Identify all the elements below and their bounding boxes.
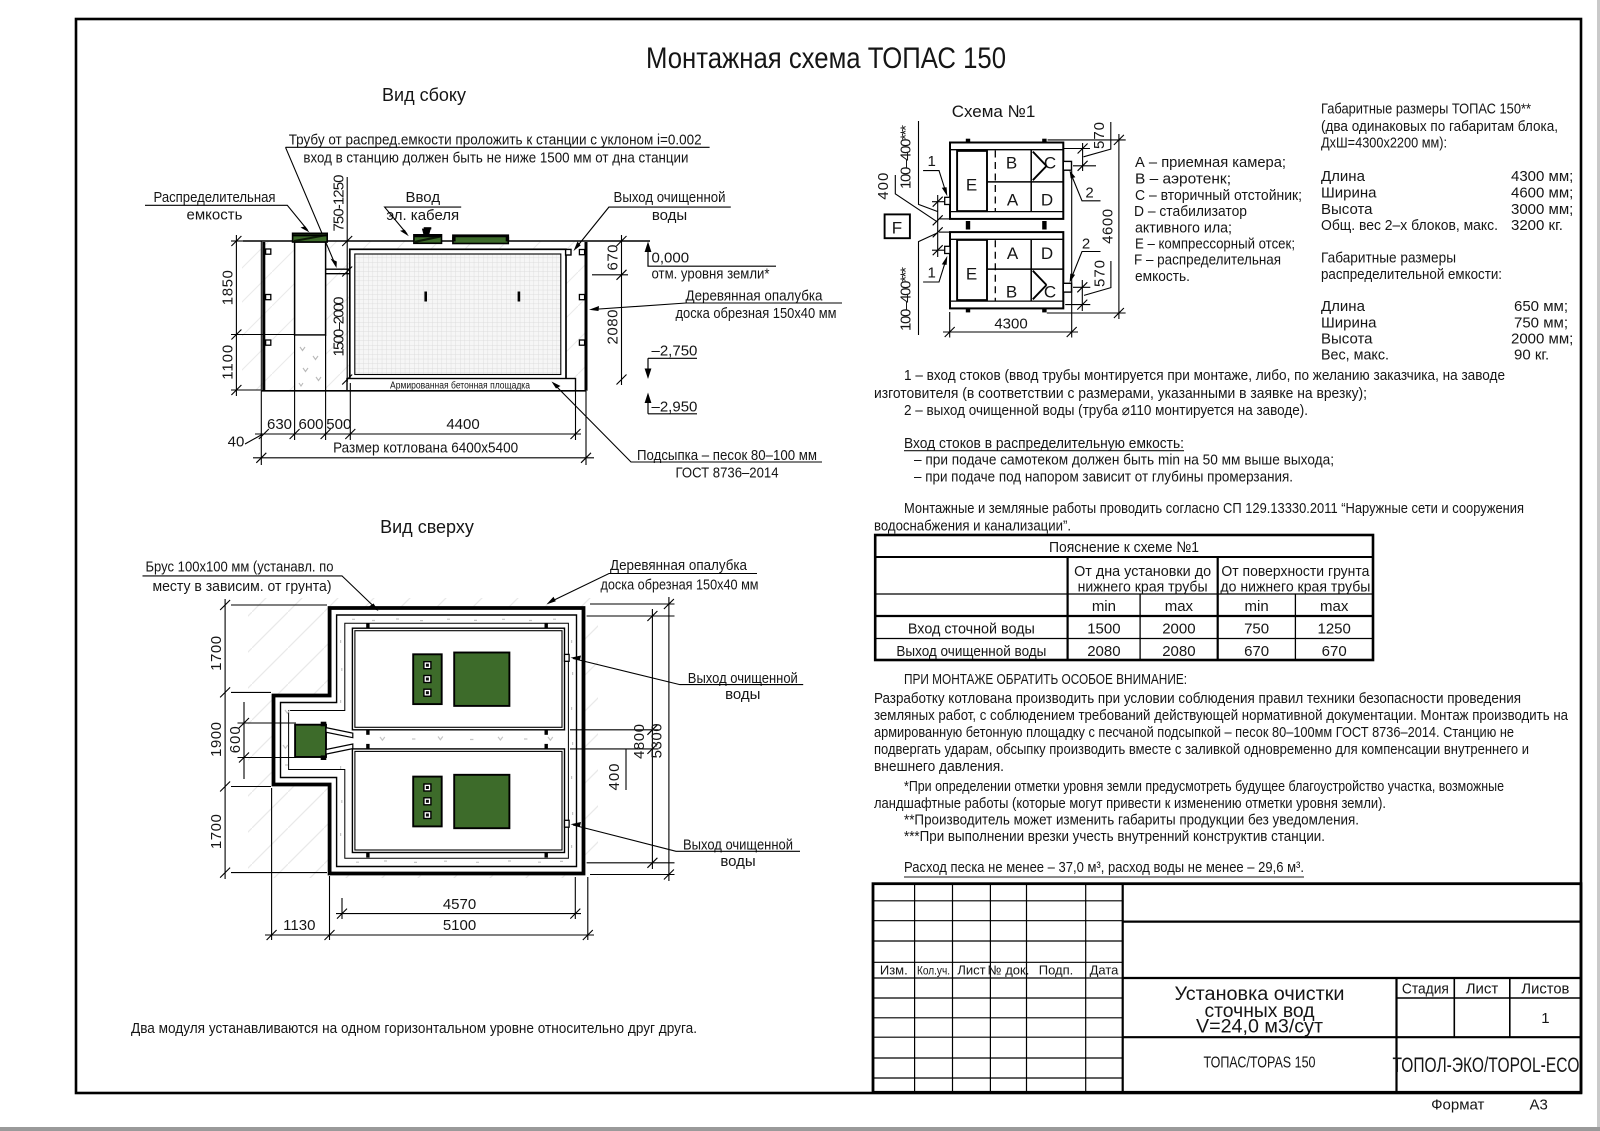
svg-text:емкость.: емкость.: [1135, 268, 1190, 285]
svg-text:доска обрезная 150х40 мм: доска обрезная 150х40 мм: [601, 577, 759, 594]
svg-text:воды: воды: [725, 686, 760, 703]
svg-text:Высота: Высота: [1321, 201, 1373, 218]
svg-text:Общ. вес 2–х блоков, макс.: Общ. вес 2–х блоков, макс.: [1321, 217, 1498, 234]
svg-text:– при подаче самотеком должен: – при подаче самотеком должен быть min н…: [914, 452, 1334, 469]
svg-text:Стадия: Стадия: [1402, 981, 1449, 998]
svg-text:Габаритные размеры: Габаритные размеры: [1321, 250, 1456, 267]
svg-text:воды: воды: [720, 853, 755, 870]
svg-text:4300 мм;: 4300 мм;: [1511, 168, 1573, 185]
svg-text:1500–2000: 1500–2000: [331, 297, 348, 357]
svg-text:земляных работ, с соблюдением: земляных работ, с соблюдением требований…: [874, 707, 1569, 724]
svg-text:1700: 1700: [208, 636, 225, 671]
svg-text:1: 1: [1541, 1010, 1549, 1027]
svg-text:4400: 4400: [446, 416, 479, 433]
svg-text:Расход песка не менее – 37,0 м: Расход песка не менее – 37,0 м³, расход …: [904, 859, 1304, 876]
svg-text:От поверхности грунта: От поверхности грунта: [1221, 563, 1370, 580]
svg-text:месту в зависим. от грунта): месту в зависим. от грунта): [153, 578, 332, 595]
svg-text:доска обрезная 150х40 мм: доска обрезная 150х40 мм: [676, 305, 837, 322]
svg-text:Армированная бетонная площадка: Армированная бетонная площадка: [390, 380, 530, 392]
svg-text:– при подаче под напором завис: – при подаче под напором зависит от глуб…: [914, 469, 1293, 486]
svg-text:изготовителя (в соответствии с: изготовителя (в соответствии с размерами…: [874, 385, 1367, 402]
svg-text:ПРИ МОНТАЖЕ ОБРАТИТЬ ОСОБОЕ ВН: ПРИ МОНТАЖЕ ОБРАТИТЬ ОСОБОЕ ВНИМАНИЕ:: [904, 671, 1187, 688]
svg-text:эл. кабеля: эл. кабеля: [386, 207, 459, 224]
svg-text:F – распределительная: F – распределительная: [1134, 252, 1281, 269]
svg-text:нижнего края трубы: нижнего края трубы: [1078, 579, 1208, 596]
svg-text:№ док.: № док.: [988, 963, 1030, 978]
svg-text:Длина: Длина: [1321, 168, 1366, 185]
svg-text:C: C: [1044, 153, 1056, 172]
svg-text:Высота: Высота: [1321, 331, 1373, 348]
svg-text:ДхШ=4300х2200 мм):: ДхШ=4300х2200 мм):: [1321, 135, 1447, 152]
svg-text:Вход сточной воды: Вход сточной воды: [908, 621, 1035, 638]
svg-text:Е – компрессорный отсек;: Е – компрессорный отсек;: [1135, 236, 1295, 253]
svg-text:40: 40: [228, 434, 245, 451]
svg-text:Подп.: Подп.: [1039, 963, 1074, 978]
svg-text:5300: 5300: [649, 723, 666, 758]
svg-text:ТОПАС/TOPAS 150: ТОПАС/TOPAS 150: [1204, 1055, 1316, 1072]
svg-text:Выход очищенной воды: Выход очищенной воды: [896, 643, 1046, 660]
svg-text:4570: 4570: [443, 896, 476, 913]
svg-text:Выход очищенной: Выход очищенной: [614, 189, 726, 206]
svg-text:4300: 4300: [994, 315, 1027, 332]
svg-text:670: 670: [1322, 643, 1347, 660]
svg-text:1850: 1850: [220, 270, 237, 305]
svg-text:Два модуля устанавливаются на: Два модуля устанавливаются на одном гори…: [131, 1020, 697, 1037]
svg-text:1: 1: [928, 265, 936, 282]
svg-text:Трубу от распред.емкости проло: Трубу от распред.емкости проложить к ста…: [289, 132, 702, 149]
svg-text:Распределительная: Распределительная: [154, 189, 276, 206]
svg-text:Кол.уч.: Кол.уч.: [917, 964, 950, 978]
svg-text:Листов: Листов: [1521, 981, 1569, 998]
svg-text:E: E: [966, 176, 977, 195]
svg-text:1900: 1900: [208, 722, 225, 757]
svg-text:A: A: [1007, 244, 1019, 263]
svg-text:1130: 1130: [283, 917, 315, 934]
svg-text:2: 2: [1085, 185, 1093, 202]
svg-text:Длина: Длина: [1321, 298, 1366, 315]
svg-text:2: 2: [1082, 236, 1090, 253]
svg-text:Размер котлована 6400х5400: Размер котлована 6400х5400: [333, 440, 518, 457]
svg-text:2000 мм;: 2000 мм;: [1511, 331, 1573, 348]
svg-text:4600: 4600: [1100, 209, 1117, 244]
svg-text:min: min: [1245, 598, 1269, 615]
svg-text:*При определении отметки уровн: *При определении отметки уровня земли пр…: [904, 778, 1504, 795]
svg-text:E: E: [966, 265, 977, 284]
svg-text:водоснабжения и канализации”.: водоснабжения и канализации”.: [874, 518, 1071, 535]
svg-text:1250: 1250: [1318, 621, 1351, 638]
svg-text:90 кг.: 90 кг.: [1514, 347, 1549, 364]
svg-text:активного ила;: активного ила;: [1135, 220, 1232, 237]
svg-text:до нижнего края трубы: до нижнего края трубы: [1220, 579, 1370, 596]
svg-text:А3: А3: [1530, 1097, 1548, 1114]
svg-text:5100: 5100: [443, 917, 476, 934]
svg-text:1700: 1700: [208, 814, 225, 849]
svg-text:Деревянная опалубка: Деревянная опалубка: [610, 557, 748, 574]
svg-text:армированную бетонную площадку: армированную бетонную площадку с песчано…: [874, 724, 1514, 741]
svg-text:Габаритные размеры ТОПАС 150**: Габаритные размеры ТОПАС 150**: [1321, 101, 1531, 118]
svg-text:отм. уровня земли*: отм. уровня земли*: [652, 266, 770, 283]
svg-text:Ширина: Ширина: [1321, 185, 1377, 202]
svg-text:Схема №1: Схема №1: [952, 102, 1036, 121]
svg-text:650 мм;: 650 мм;: [1514, 298, 1568, 315]
svg-text:Вход стоков в распределительну: Вход стоков в распределительную емкость:: [904, 435, 1184, 452]
svg-text:600: 600: [227, 726, 244, 753]
svg-text:Монтажные и земляные работы пр: Монтажные и земляные работы проводить со…: [904, 500, 1524, 517]
svg-text:600: 600: [298, 416, 323, 433]
svg-text:D: D: [1041, 191, 1053, 210]
svg-text:2000: 2000: [1162, 621, 1195, 638]
svg-text:внешнего давления.: внешнего давления.: [874, 758, 1004, 775]
svg-text:750 мм;: 750 мм;: [1514, 315, 1568, 332]
svg-text:–2,750: –2,750: [652, 343, 698, 360]
svg-text:400: 400: [875, 173, 892, 200]
svg-text:3000 мм;: 3000 мм;: [1511, 201, 1573, 218]
svg-text:400: 400: [606, 764, 623, 791]
svg-text:max: max: [1165, 598, 1194, 615]
svg-text:max: max: [1320, 598, 1349, 615]
svg-text:670: 670: [1244, 643, 1269, 660]
svg-text:С – вторичный отстойник;: С – вторичный отстойник;: [1135, 187, 1302, 204]
svg-text:распределительной емкости:: распределительной емкости:: [1321, 266, 1502, 283]
svg-text:3200 кг.: 3200 кг.: [1511, 217, 1563, 234]
svg-text:вход в станцию должен быть не: вход в станцию должен быть не ниже 1500 …: [303, 150, 688, 167]
svg-text:В – аэротенк;: В – аэротенк;: [1135, 171, 1231, 188]
svg-text:100–400***: 100–400***: [898, 267, 915, 331]
svg-text:Формат: Формат: [1431, 1097, 1484, 1114]
svg-text:2080: 2080: [1162, 643, 1195, 660]
svg-text:Ввод: Ввод: [406, 189, 441, 206]
svg-text:2080: 2080: [605, 310, 622, 345]
svg-text:подвергать ударам, обсыпку про: подвергать ударам, обсыпку производить в…: [874, 741, 1529, 758]
svg-text:A: A: [1007, 191, 1019, 210]
svg-text:Пояснение к схеме №1: Пояснение к схеме №1: [1049, 539, 1199, 556]
svg-text:Изм.: Изм.: [880, 963, 908, 978]
svg-text:570: 570: [1092, 260, 1109, 287]
svg-text:4800: 4800: [631, 724, 648, 759]
svg-text:750-1250: 750-1250: [331, 175, 348, 232]
svg-text:B: B: [1006, 153, 1017, 172]
svg-text:Брус 100х100 мм (устанавл. по: Брус 100х100 мм (устанавл. по: [146, 559, 334, 576]
svg-text:воды: воды: [652, 207, 687, 224]
svg-text:Вид сверху: Вид сверху: [380, 517, 474, 537]
svg-text:750: 750: [1244, 621, 1269, 638]
svg-text:Разработку котлована производи: Разработку котлована производить при усл…: [874, 690, 1521, 707]
svg-text:От дна установки до: От дна установки до: [1074, 563, 1211, 580]
svg-text:D – стабилизатор: D – стабилизатор: [1134, 203, 1247, 220]
svg-text:4600 мм;: 4600 мм;: [1511, 185, 1573, 202]
svg-text:F: F: [892, 219, 902, 238]
svg-text:ТОПОЛ-ЭКО/TOPOL-ECO: ТОПОЛ-ЭКО/TOPOL-ECO: [1393, 1054, 1580, 1077]
svg-text:Лист: Лист: [1466, 981, 1499, 998]
svg-text:2080: 2080: [1087, 643, 1120, 660]
svg-text:ландшафтные работы (которые мо: ландшафтные работы (которые могут привес…: [874, 795, 1386, 812]
svg-text:Вес, макс.: Вес, макс.: [1321, 347, 1389, 364]
svg-text:Лист: Лист: [957, 963, 985, 978]
svg-text:2 – выход очищенной воды (труб: 2 – выход очищенной воды (труба ⌀110 мон…: [904, 402, 1308, 419]
svg-text:1 – вход стоков (ввод трубы м: 1 – вход стоков (ввод трубы монтируется …: [904, 367, 1505, 384]
svg-text:Деревянная опалубка: Деревянная опалубка: [686, 288, 824, 305]
svg-text:V=24,0 м3/сут: V=24,0 м3/сут: [1196, 1017, 1323, 1038]
svg-text:А – приемная камера;: А – приемная камера;: [1135, 154, 1286, 171]
svg-text:D: D: [1041, 244, 1053, 263]
svg-text:Монтажная схема ТОПАС 150: Монтажная схема ТОПАС 150: [646, 42, 1006, 75]
svg-text:Вид сбоку: Вид сбоку: [382, 85, 466, 105]
svg-text:570: 570: [1091, 122, 1108, 149]
svg-text:Ширина: Ширина: [1321, 315, 1377, 332]
svg-text:0,000: 0,000: [652, 250, 690, 267]
svg-text:ГОСТ 8736–2014: ГОСТ 8736–2014: [676, 465, 779, 482]
svg-text:емкость: емкость: [187, 207, 243, 224]
svg-text:B: B: [1006, 283, 1017, 302]
svg-text:1: 1: [928, 153, 936, 170]
svg-text:630: 630: [267, 416, 292, 433]
svg-text:100–400***: 100–400***: [898, 125, 915, 189]
svg-text:**Производитель может изменить: **Производитель может изменить габариты …: [904, 812, 1359, 829]
svg-text:–2,950: –2,950: [652, 399, 698, 416]
svg-text:min: min: [1092, 598, 1116, 615]
svg-text:1500: 1500: [1087, 621, 1120, 638]
svg-text:1100: 1100: [220, 345, 237, 380]
svg-text:***При выполнении врезки учест: ***При выполнении врезки учесть внутренн…: [904, 828, 1325, 845]
svg-text:(два одинаковых по габаритам б: (два одинаковых по габаритам блока,: [1321, 118, 1558, 135]
svg-text:500: 500: [326, 416, 351, 433]
svg-text:Дата: Дата: [1090, 963, 1120, 978]
svg-text:670: 670: [605, 245, 622, 271]
